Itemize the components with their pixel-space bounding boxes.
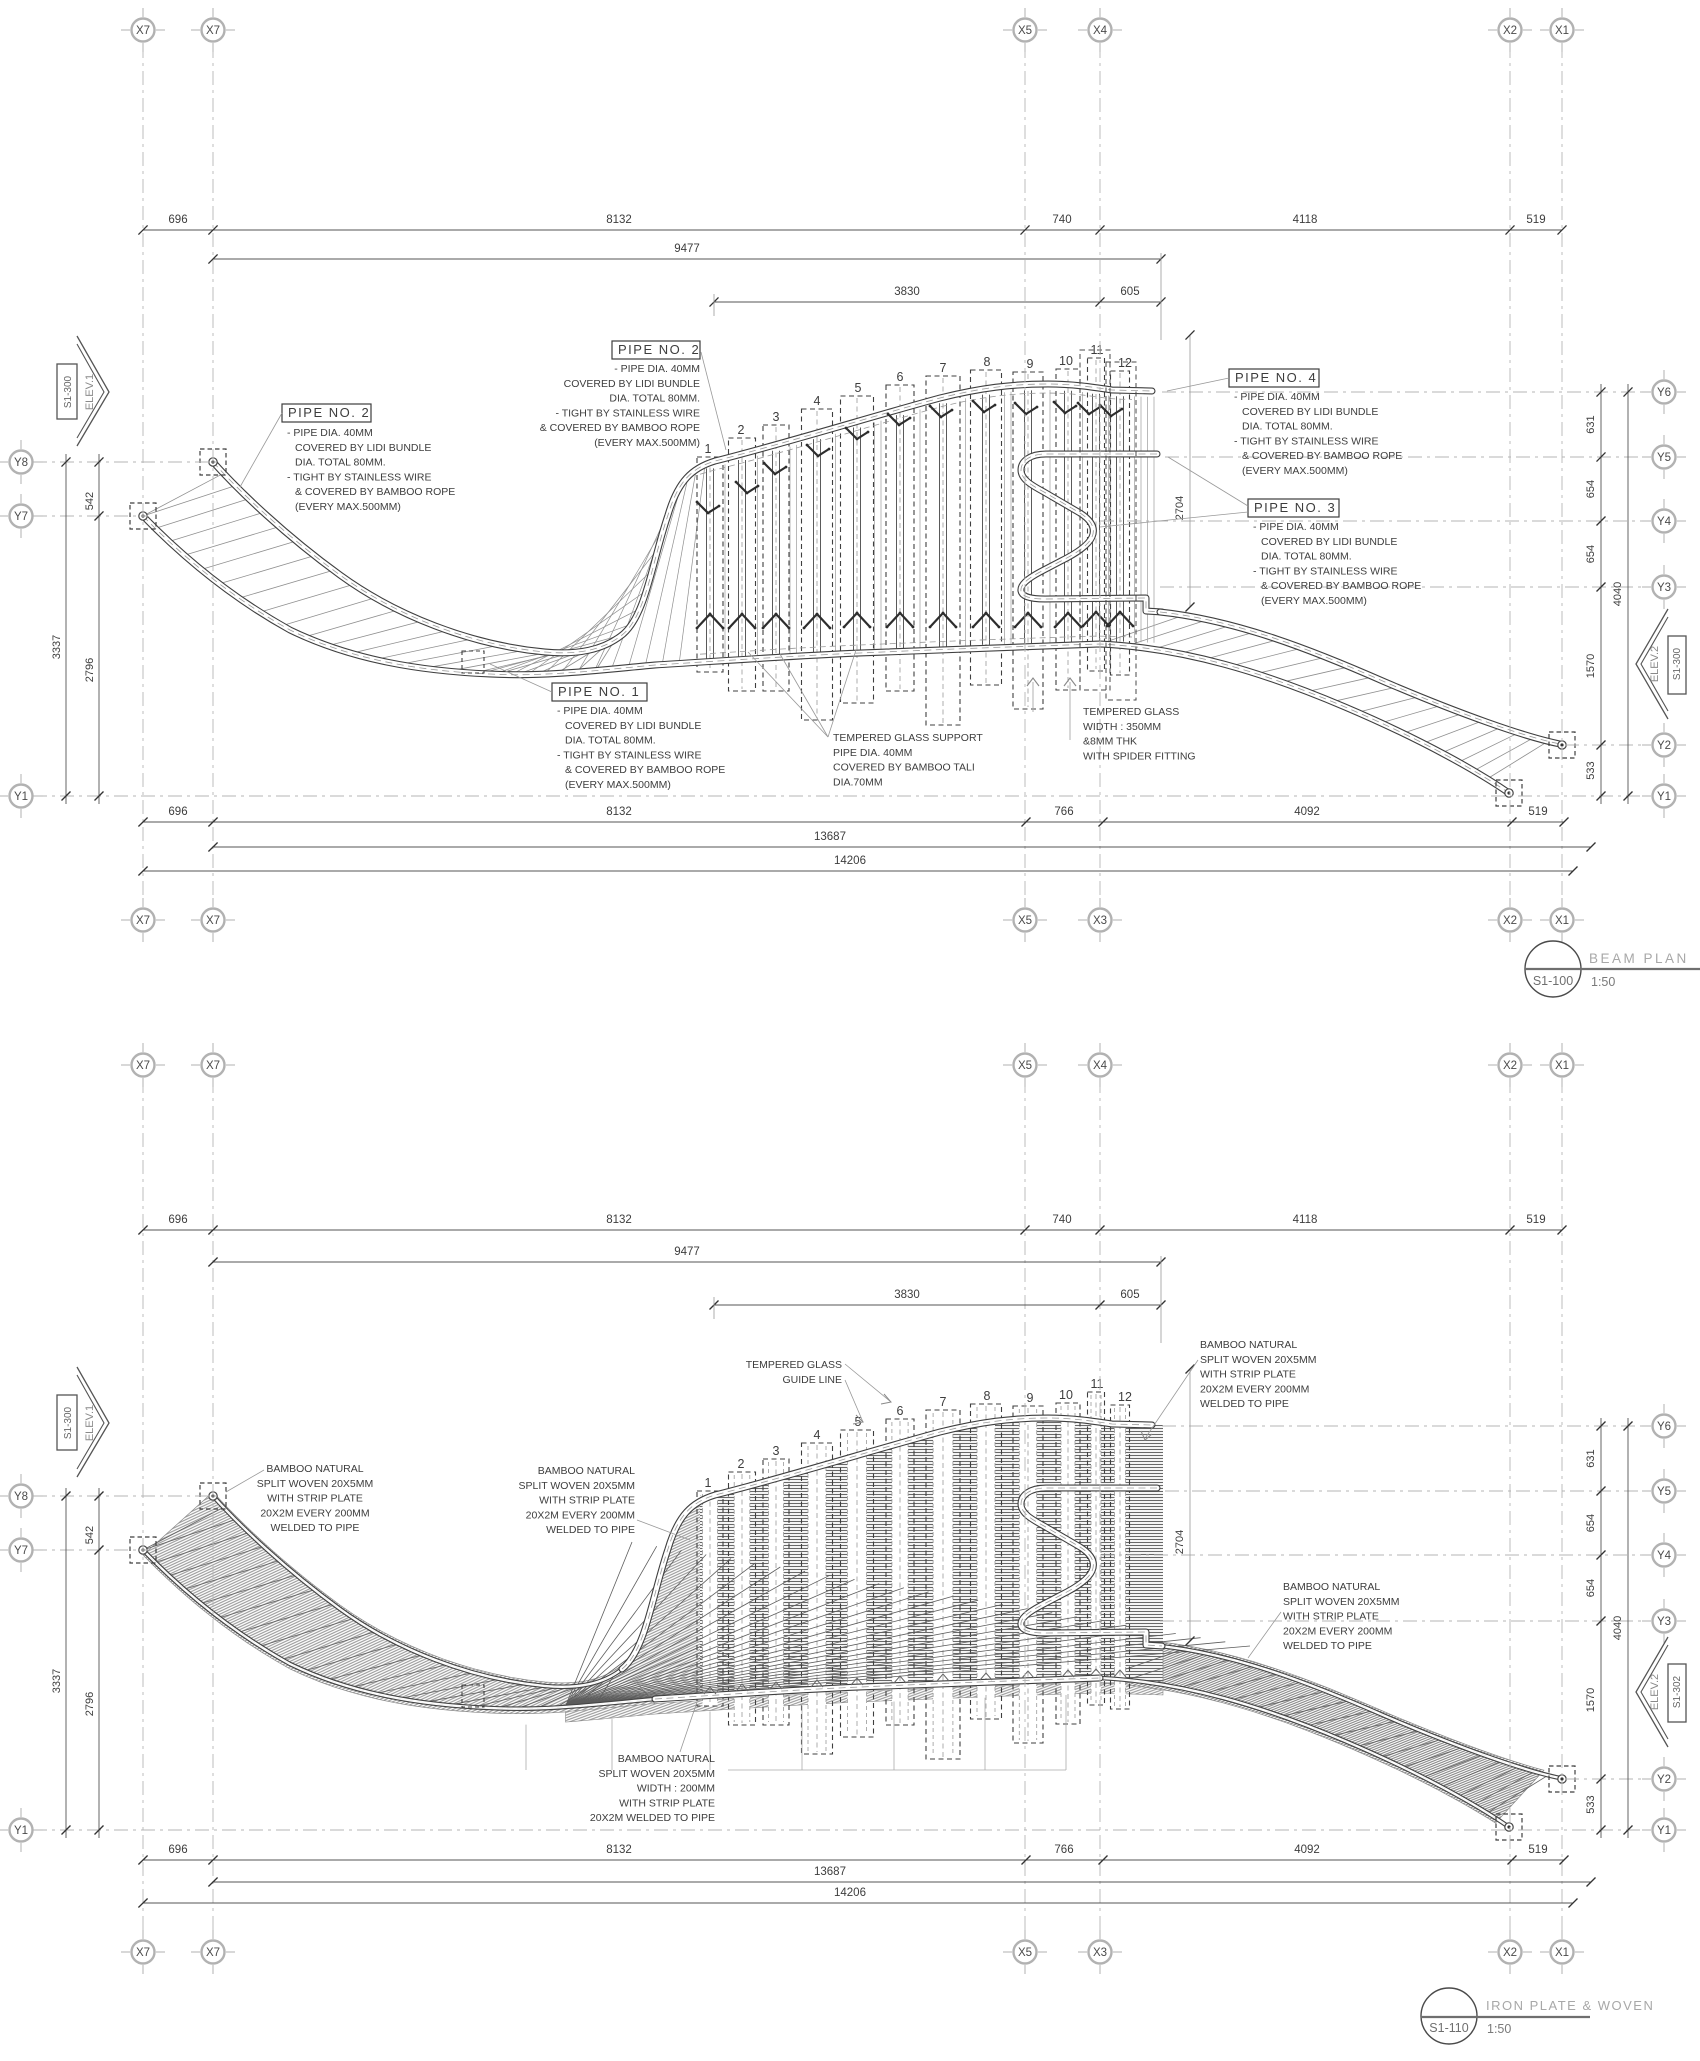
svg-text:8132: 8132 [606, 1844, 632, 1856]
svg-text:533: 533 [1585, 761, 1597, 779]
svg-text:766: 766 [1054, 806, 1073, 818]
svg-text:7: 7 [940, 1395, 947, 1409]
svg-text:542: 542 [84, 1526, 96, 1544]
svg-text:BAMBOO NATURAL: BAMBOO NATURAL [1283, 1581, 1380, 1593]
svg-text:X7: X7 [206, 1947, 220, 1959]
svg-text:740: 740 [1052, 214, 1071, 226]
svg-text:3: 3 [773, 1444, 780, 1458]
svg-text:654: 654 [1585, 480, 1597, 498]
svg-text:(EVERY MAX.500MM): (EVERY MAX.500MM) [594, 437, 700, 449]
svg-text:4118: 4118 [1293, 214, 1318, 226]
svg-text:X7: X7 [206, 25, 220, 37]
svg-text:- TIGHT BY STAINLESS WIRE: - TIGHT BY STAINLESS WIRE [1234, 435, 1379, 447]
svg-text:X3: X3 [1093, 1947, 1107, 1959]
svg-text:(EVERY MAX.500MM): (EVERY MAX.500MM) [295, 501, 401, 513]
svg-text:Y1: Y1 [1657, 1825, 1671, 1837]
svg-text:GUIDE LINE: GUIDE LINE [782, 1374, 842, 1386]
svg-text:6: 6 [897, 370, 904, 384]
svg-text:14206: 14206 [834, 1887, 866, 1899]
svg-text:Y3: Y3 [1657, 1616, 1671, 1628]
svg-text:WITH STRIP PLATE: WITH STRIP PLATE [1200, 1369, 1296, 1381]
svg-text:(EVERY MAX.500MM): (EVERY MAX.500MM) [1242, 465, 1348, 477]
svg-text:- PIPE DIA. 40MM: - PIPE DIA. 40MM [1253, 521, 1339, 533]
svg-text:20X2M WELDED TO PIPE: 20X2M WELDED TO PIPE [590, 1812, 715, 1824]
svg-text:SPLIT WOVEN 20X5MM: SPLIT WOVEN 20X5MM [1200, 1354, 1317, 1366]
svg-text:PIPE NO. 1: PIPE NO. 1 [558, 684, 640, 699]
svg-text:605: 605 [1120, 1289, 1139, 1301]
svg-text:Y1: Y1 [1657, 791, 1671, 803]
svg-text:WITH SPIDER FITTING: WITH SPIDER FITTING [1083, 750, 1196, 762]
svg-text:Y4: Y4 [1657, 516, 1672, 528]
svg-text:20X2M EVERY 200MM: 20X2M EVERY 200MM [260, 1507, 369, 1519]
svg-text:1570: 1570 [1585, 654, 1597, 678]
svg-text:631: 631 [1585, 415, 1597, 433]
svg-text:X2: X2 [1503, 915, 1517, 927]
svg-text:S1-300: S1-300 [1672, 647, 1683, 680]
svg-text:DIA.70MM: DIA.70MM [833, 776, 883, 788]
svg-text:740: 740 [1052, 1214, 1071, 1226]
svg-text:X2: X2 [1503, 1947, 1517, 1959]
svg-text:SPLIT WOVEN 20X5MM: SPLIT WOVEN 20X5MM [1283, 1596, 1400, 1608]
svg-text:X5: X5 [1018, 915, 1032, 927]
svg-text:X7: X7 [136, 1947, 150, 1959]
svg-text:8132: 8132 [606, 1214, 632, 1226]
svg-text:654: 654 [1585, 1579, 1597, 1597]
svg-text:4092: 4092 [1294, 1844, 1320, 1856]
svg-text:12: 12 [1118, 1390, 1132, 1404]
svg-text:BAMBOO NATURAL: BAMBOO NATURAL [618, 1753, 715, 1765]
svg-text:SPLIT WOVEN 20X5MM: SPLIT WOVEN 20X5MM [598, 1768, 715, 1780]
svg-text:Y4: Y4 [1657, 1550, 1672, 1562]
svg-text:IRON PLATE & WOVEN: IRON PLATE & WOVEN [1486, 1998, 1654, 2013]
svg-text:9477: 9477 [674, 243, 700, 255]
svg-text:ELEV.1: ELEV.1 [84, 1405, 96, 1441]
svg-text:X1: X1 [1555, 1947, 1569, 1959]
svg-text:2796: 2796 [84, 658, 96, 682]
svg-text:ELEV.2: ELEV.2 [1649, 646, 1661, 682]
svg-text:3337: 3337 [51, 635, 63, 659]
svg-text:8132: 8132 [606, 214, 632, 226]
svg-text:4040: 4040 [1612, 1616, 1624, 1640]
svg-text:S1-110: S1-110 [1429, 2021, 1468, 2035]
svg-text:2796: 2796 [84, 1692, 96, 1716]
svg-text:10: 10 [1059, 1388, 1073, 1402]
svg-text:2704: 2704 [1174, 496, 1186, 520]
svg-text:PIPE NO. 2: PIPE NO. 2 [618, 342, 700, 357]
svg-text:1: 1 [705, 442, 712, 456]
svg-text:519: 519 [1528, 1844, 1547, 1856]
svg-text:10: 10 [1059, 354, 1073, 368]
svg-text:- TIGHT BY STAINLESS WIRE: - TIGHT BY STAINLESS WIRE [287, 471, 432, 483]
svg-text:X3: X3 [1093, 915, 1107, 927]
svg-text:COVERED BY LIDI BUNDLE: COVERED BY LIDI BUNDLE [1242, 406, 1378, 418]
svg-text:631: 631 [1585, 1449, 1597, 1467]
svg-text:Y2: Y2 [1657, 1774, 1671, 1786]
svg-text:13687: 13687 [814, 1866, 846, 1878]
svg-text:8: 8 [984, 1389, 991, 1403]
svg-text:X7: X7 [206, 1060, 220, 1072]
svg-text:DIA. TOTAL 80MM.: DIA. TOTAL 80MM. [295, 457, 386, 469]
svg-text:Y5: Y5 [1657, 1486, 1671, 1498]
svg-text:DIA. TOTAL 80MM.: DIA. TOTAL 80MM. [609, 393, 700, 405]
svg-text:& COVERED BY BAMBOO ROPE: & COVERED BY BAMBOO ROPE [540, 422, 700, 434]
svg-text:TEMPERED GLASS SUPPORT: TEMPERED GLASS SUPPORT [833, 732, 983, 744]
svg-text:4040: 4040 [1612, 582, 1624, 606]
svg-text:BAMBOO NATURAL: BAMBOO NATURAL [266, 1463, 363, 1475]
svg-text:2704: 2704 [1174, 1530, 1186, 1554]
svg-text:X5: X5 [1018, 25, 1032, 37]
svg-text:TEMPERED GLASS: TEMPERED GLASS [1083, 706, 1179, 718]
svg-text:COVERED BY LIDI BUNDLE: COVERED BY LIDI BUNDLE [565, 720, 701, 732]
svg-text:WITH STRIP PLATE: WITH STRIP PLATE [539, 1495, 635, 1507]
svg-text:(EVERY MAX.500MM): (EVERY MAX.500MM) [1261, 595, 1367, 607]
svg-text:Y7: Y7 [14, 511, 28, 523]
svg-text:12: 12 [1118, 356, 1132, 370]
svg-text:S1-100: S1-100 [1533, 974, 1573, 988]
svg-text:X4: X4 [1093, 25, 1108, 37]
svg-text:WIDTH : 200MM: WIDTH : 200MM [637, 1783, 715, 1795]
svg-text:9: 9 [1027, 1391, 1034, 1405]
svg-text:3337: 3337 [51, 1669, 63, 1693]
svg-text:ELEV.2: ELEV.2 [1649, 1674, 1661, 1710]
svg-text:519: 519 [1526, 214, 1545, 226]
svg-text:Y2: Y2 [1657, 740, 1671, 752]
svg-text:3: 3 [773, 410, 780, 424]
svg-text:519: 519 [1526, 1214, 1545, 1226]
svg-text:(EVERY MAX.500MM): (EVERY MAX.500MM) [565, 779, 671, 791]
svg-text:- TIGHT BY STAINLESS WIRE: - TIGHT BY STAINLESS WIRE [557, 749, 702, 761]
svg-text:- TIGHT BY STAINLESS WIRE: - TIGHT BY STAINLESS WIRE [1253, 565, 1398, 577]
svg-text:533: 533 [1585, 1795, 1597, 1813]
svg-text:14206: 14206 [834, 855, 866, 867]
svg-text:PIPE NO. 4: PIPE NO. 4 [1235, 370, 1317, 385]
svg-text:696: 696 [168, 214, 187, 226]
svg-text:542: 542 [84, 492, 96, 510]
svg-text:X7: X7 [206, 915, 220, 927]
svg-text:4: 4 [814, 394, 821, 408]
svg-text:DIA. TOTAL 80MM.: DIA. TOTAL 80MM. [565, 735, 656, 747]
svg-text:- TIGHT BY STAINLESS WIRE: - TIGHT BY STAINLESS WIRE [555, 407, 700, 419]
svg-text:BAMBOO NATURAL: BAMBOO NATURAL [1200, 1339, 1297, 1351]
svg-text:8: 8 [984, 355, 991, 369]
svg-text:696: 696 [168, 1844, 187, 1856]
svg-text:696: 696 [168, 1214, 187, 1226]
svg-text:S1-300: S1-300 [63, 1406, 74, 1439]
svg-text:Y1: Y1 [14, 1825, 28, 1837]
svg-text:- PIPE DIA. 40MM: - PIPE DIA. 40MM [557, 705, 643, 717]
svg-text:X5: X5 [1018, 1947, 1032, 1959]
svg-text:- PIPE DIA. 40MM: - PIPE DIA. 40MM [614, 363, 700, 375]
svg-text:WITH STRIP PLATE: WITH STRIP PLATE [267, 1493, 363, 1505]
svg-text:WELDED TO PIPE: WELDED TO PIPE [271, 1522, 360, 1534]
svg-text:BAMBOO NATURAL: BAMBOO NATURAL [538, 1465, 635, 1477]
svg-text:766: 766 [1054, 1844, 1073, 1856]
svg-text:ELEV.1: ELEV.1 [84, 374, 96, 410]
svg-text:13687: 13687 [814, 831, 846, 843]
svg-text:Y6: Y6 [1657, 1421, 1671, 1433]
svg-text:11: 11 [1091, 343, 1104, 357]
svg-text:& COVERED BY BAMBOO ROPE: & COVERED BY BAMBOO ROPE [1261, 580, 1421, 592]
svg-text:20X2M EVERY 200MM: 20X2M EVERY 200MM [1200, 1383, 1309, 1395]
svg-text:WITH STRIP PLATE: WITH STRIP PLATE [619, 1797, 715, 1809]
svg-text:Y8: Y8 [14, 1491, 28, 1503]
svg-text:5: 5 [855, 381, 862, 395]
svg-text:Y7: Y7 [14, 1545, 28, 1557]
svg-text:Y3: Y3 [1657, 582, 1671, 594]
svg-text:654: 654 [1585, 1514, 1597, 1532]
svg-text:DIA. TOTAL 80MM.: DIA. TOTAL 80MM. [1242, 421, 1333, 433]
svg-text:20X2M EVERY 200MM: 20X2M EVERY 200MM [1283, 1625, 1392, 1637]
svg-text:X7: X7 [136, 25, 150, 37]
svg-text:WELDED TO PIPE: WELDED TO PIPE [1200, 1398, 1289, 1410]
svg-text:X2: X2 [1503, 25, 1517, 37]
svg-text:4: 4 [814, 1428, 821, 1442]
svg-text:6: 6 [897, 1404, 904, 1418]
svg-text:4118: 4118 [1293, 1214, 1318, 1226]
svg-text:& COVERED BY BAMBOO ROPE: & COVERED BY BAMBOO ROPE [295, 486, 455, 498]
svg-text:519: 519 [1528, 806, 1547, 818]
svg-text:DIA. TOTAL 80MM.: DIA. TOTAL 80MM. [1261, 551, 1352, 563]
svg-text:696: 696 [168, 806, 187, 818]
svg-text:WELDED TO PIPE: WELDED TO PIPE [546, 1524, 635, 1536]
svg-text:COVERED BY BAMBOO TALI: COVERED BY BAMBOO TALI [833, 762, 975, 774]
svg-text:8132: 8132 [606, 806, 632, 818]
svg-text:WIDTH : 350MM: WIDTH : 350MM [1083, 721, 1161, 733]
svg-text:PIPE NO. 2: PIPE NO. 2 [288, 405, 370, 420]
svg-text:SPLIT WOVEN 20X5MM: SPLIT WOVEN 20X5MM [257, 1478, 374, 1490]
svg-text:WELDED TO PIPE: WELDED TO PIPE [1283, 1640, 1372, 1652]
svg-text:WITH STRIP PLATE: WITH STRIP PLATE [1283, 1611, 1379, 1623]
svg-text:Y6: Y6 [1657, 387, 1671, 399]
svg-text:Y8: Y8 [14, 457, 28, 469]
svg-text:654: 654 [1585, 545, 1597, 563]
svg-text:&8MM THK: &8MM THK [1083, 736, 1137, 748]
svg-text:Y1: Y1 [14, 791, 28, 803]
svg-text:20X2M EVERY 200MM: 20X2M EVERY 200MM [526, 1509, 635, 1521]
svg-text:2: 2 [738, 1457, 745, 1471]
svg-text:SPLIT WOVEN 20X5MM: SPLIT WOVEN 20X5MM [518, 1480, 635, 1492]
svg-text:- PIPE DIA. 40MM: - PIPE DIA. 40MM [287, 427, 373, 439]
svg-text:& COVERED BY BAMBOO ROPE: & COVERED BY BAMBOO ROPE [1242, 450, 1402, 462]
svg-text:PIPE DIA. 40MM: PIPE DIA. 40MM [833, 747, 912, 759]
svg-text:COVERED BY LIDI BUNDLE: COVERED BY LIDI BUNDLE [295, 442, 431, 454]
svg-text:X1: X1 [1555, 1060, 1569, 1072]
svg-text:605: 605 [1120, 286, 1139, 298]
svg-text:9477: 9477 [674, 1246, 700, 1258]
svg-text:S1-302: S1-302 [1672, 1675, 1683, 1708]
svg-text:3830: 3830 [894, 1289, 920, 1301]
svg-text:1570: 1570 [1585, 1688, 1597, 1712]
svg-text:PIPE NO. 3: PIPE NO. 3 [1254, 500, 1336, 515]
svg-text:3830: 3830 [894, 286, 920, 298]
svg-text:Y5: Y5 [1657, 452, 1671, 464]
svg-text:1: 1 [705, 1476, 712, 1490]
svg-text:X1: X1 [1555, 915, 1569, 927]
svg-text:COVERED BY LIDI BUNDLE: COVERED BY LIDI BUNDLE [1261, 536, 1397, 548]
svg-text:BEAM PLAN: BEAM PLAN [1589, 951, 1689, 966]
svg-text:TEMPERED GLASS: TEMPERED GLASS [746, 1359, 842, 1371]
svg-text:X2: X2 [1503, 1060, 1517, 1072]
svg-text:1:50: 1:50 [1487, 2022, 1511, 2036]
svg-text:& COVERED BY BAMBOO ROPE: & COVERED BY BAMBOO ROPE [565, 764, 725, 776]
svg-text:S1-300: S1-300 [63, 375, 74, 408]
svg-text:2: 2 [738, 423, 745, 437]
svg-text:COVERED BY LIDI BUNDLE: COVERED BY LIDI BUNDLE [564, 378, 700, 390]
svg-text:X1: X1 [1555, 25, 1569, 37]
svg-text:4092: 4092 [1294, 806, 1320, 818]
svg-text:X7: X7 [136, 1060, 150, 1072]
svg-text:X5: X5 [1018, 1060, 1032, 1072]
svg-text:- PIPE DIA. 40MM: - PIPE DIA. 40MM [1234, 391, 1320, 403]
svg-text:7: 7 [940, 361, 947, 375]
svg-text:X7: X7 [136, 915, 150, 927]
svg-text:1:50: 1:50 [1591, 975, 1615, 989]
svg-text:11: 11 [1091, 1377, 1104, 1391]
svg-text:X4: X4 [1093, 1060, 1108, 1072]
svg-text:9: 9 [1027, 357, 1034, 371]
